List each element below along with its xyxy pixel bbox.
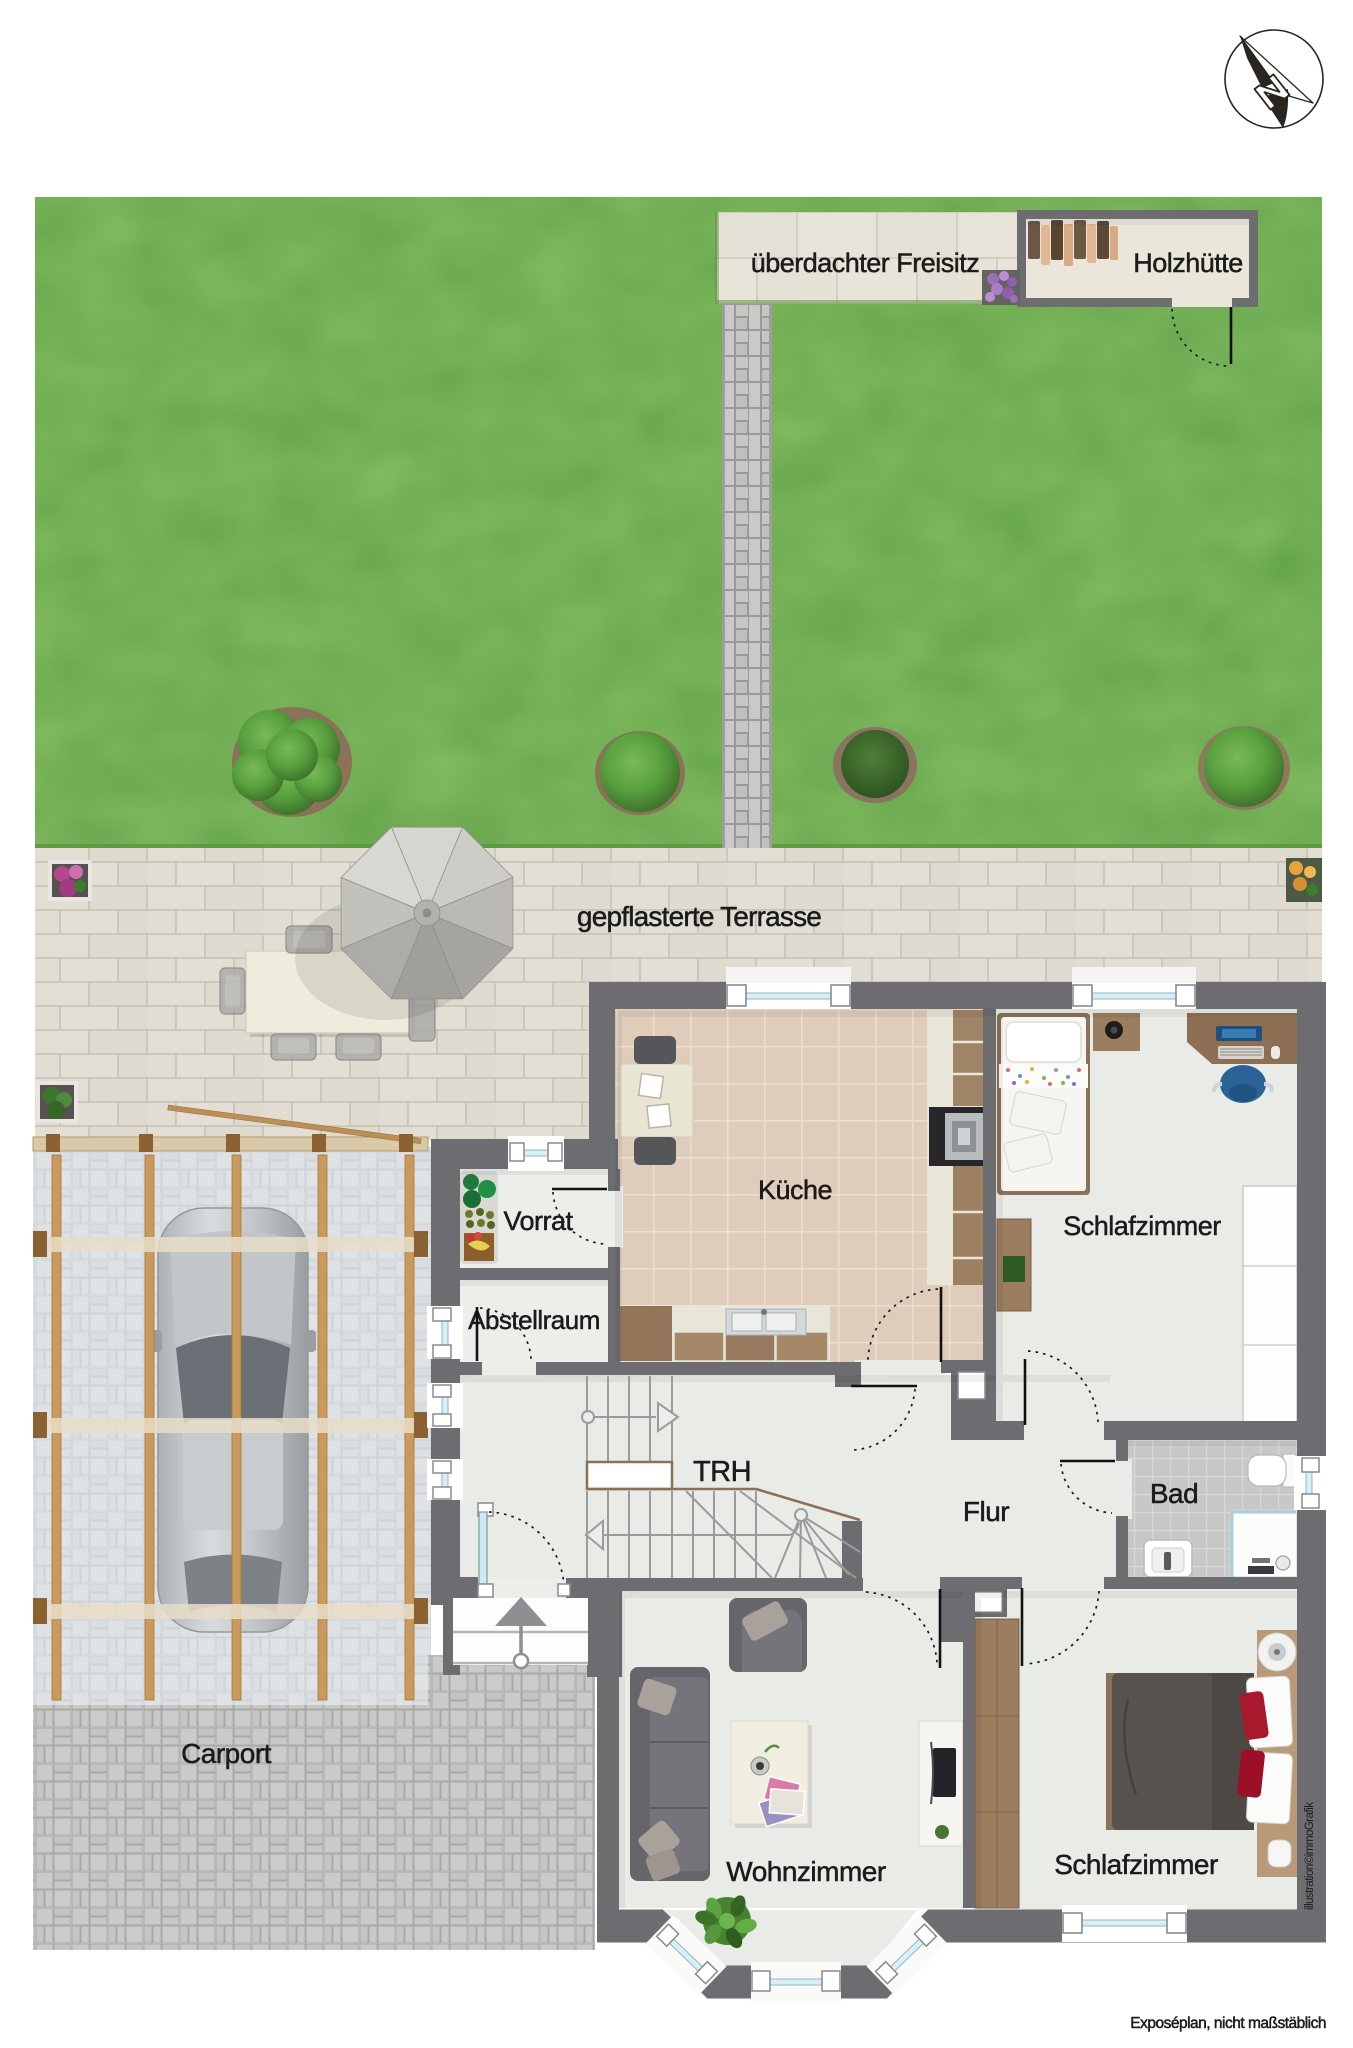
svg-text:Küche: Küche: [758, 1175, 832, 1205]
svg-text:Holzhütte: Holzhütte: [1133, 248, 1243, 278]
svg-text:TRH: TRH: [693, 1456, 751, 1488]
svg-text:Carport: Carport: [181, 1738, 272, 1769]
svg-text:Exposéplan, nicht maßstäblich: Exposéplan, nicht maßstäblich: [1130, 2015, 1326, 2032]
svg-text:Bad: Bad: [1150, 1478, 1198, 1509]
svg-text:illustration©immoGrafik: illustration©immoGrafik: [1304, 1802, 1316, 1910]
svg-text:Flur: Flur: [963, 1496, 1009, 1527]
svg-text:überdachter Freisitz: überdachter Freisitz: [751, 248, 980, 278]
svg-text:Wohnzimmer: Wohnzimmer: [726, 1856, 886, 1887]
svg-text:Schlafzimmer: Schlafzimmer: [1054, 1849, 1218, 1880]
svg-text:gepflasterte Terrasse: gepflasterte Terrasse: [577, 901, 821, 932]
svg-text:Schlafzimmer: Schlafzimmer: [1063, 1211, 1221, 1241]
